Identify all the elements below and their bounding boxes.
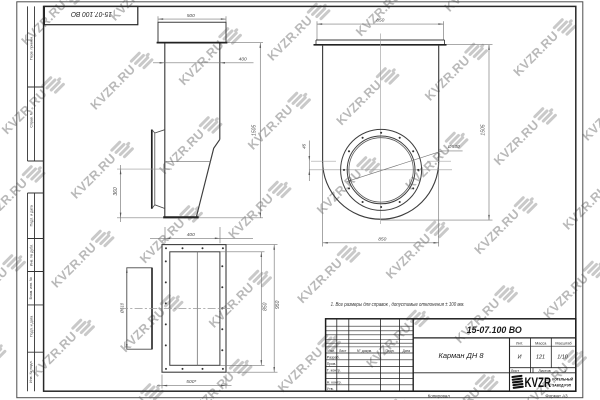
svg-text:Копировал: Копировал (428, 393, 450, 398)
svg-text:400: 400 (187, 232, 195, 238)
svg-text:45: 45 (302, 143, 307, 149)
svg-text:360: 360 (113, 187, 119, 196)
svg-text:Ø610: Ø610 (120, 302, 125, 314)
svg-text:ЗАВОД РЭП: ЗАВОД РЭП (552, 383, 572, 387)
svg-text:Подп. и дата: Подп. и дата (29, 205, 33, 226)
svg-text:400: 400 (239, 57, 247, 63)
svg-text:Справ. №: Справ. № (29, 111, 33, 127)
svg-text:Масса: Масса (535, 342, 547, 346)
svg-text:Подп. и дата: Подп. и дата (29, 316, 33, 337)
svg-text:KVZR: KVZR (525, 375, 552, 390)
svg-text:N° докум.: N° докум. (357, 349, 372, 353)
svg-text:И: И (518, 355, 522, 361)
svg-text:Т. контр.: Т. контр. (327, 369, 341, 373)
svg-text:1: 1 (564, 369, 566, 373)
svg-text:850: 850 (262, 302, 268, 311)
svg-text:Н. контр.: Н. контр. (327, 381, 342, 385)
svg-text:КОТЕЛЬНЫЙ: КОТЕЛЬНЫЙ (552, 377, 573, 381)
svg-text:15-07.100 ВО: 15-07.100 ВО (467, 325, 522, 336)
svg-text:121: 121 (536, 355, 545, 361)
svg-text:1505: 1505 (251, 125, 257, 136)
svg-text:Пров.: Пров. (327, 362, 337, 366)
svg-text:15-07.100 ВО: 15-07.100 ВО (70, 10, 112, 17)
svg-text:950: 950 (275, 300, 281, 309)
svg-text:500*: 500* (186, 379, 197, 385)
svg-text:850: 850 (376, 18, 384, 24)
svg-text:Масштаб: Масштаб (555, 342, 572, 346)
svg-text:Дата: Дата (403, 349, 411, 353)
svg-text:1/10: 1/10 (557, 355, 568, 361)
svg-text:850: 850 (378, 237, 386, 243)
svg-text:1. Все размеры для справок ,: 1. Все размеры для справок , допустимые … (331, 302, 465, 308)
svg-text:Подп.: Подп. (385, 349, 394, 353)
svg-text:Перв. примен.: Перв. примен. (29, 36, 33, 60)
svg-text:Формат А3: Формат А3 (545, 394, 568, 399)
svg-text:Лит.: Лит. (516, 342, 523, 346)
svg-text:Ø530: Ø530 (447, 144, 460, 150)
svg-text:Лист: Лист (511, 369, 520, 373)
svg-text:Лист: Лист (339, 349, 347, 353)
svg-text:Карман ДН 8: Карман ДН 8 (439, 351, 484, 360)
svg-text:Инв. № дубл.: Инв. № дубл. (29, 244, 33, 266)
svg-text:500: 500 (187, 13, 195, 19)
svg-text:Разраб.: Разраб. (327, 355, 340, 359)
svg-text:1505: 1505 (481, 124, 487, 135)
svg-text:Изм.: Изм. (327, 349, 334, 353)
svg-text:Листов: Листов (538, 369, 550, 373)
svg-text:Инв. № подл.: Инв. № подл. (29, 361, 33, 383)
svg-text:Утв.: Утв. (327, 387, 334, 391)
svg-text:Взам. инв. №: Взам. инв. № (29, 277, 33, 299)
